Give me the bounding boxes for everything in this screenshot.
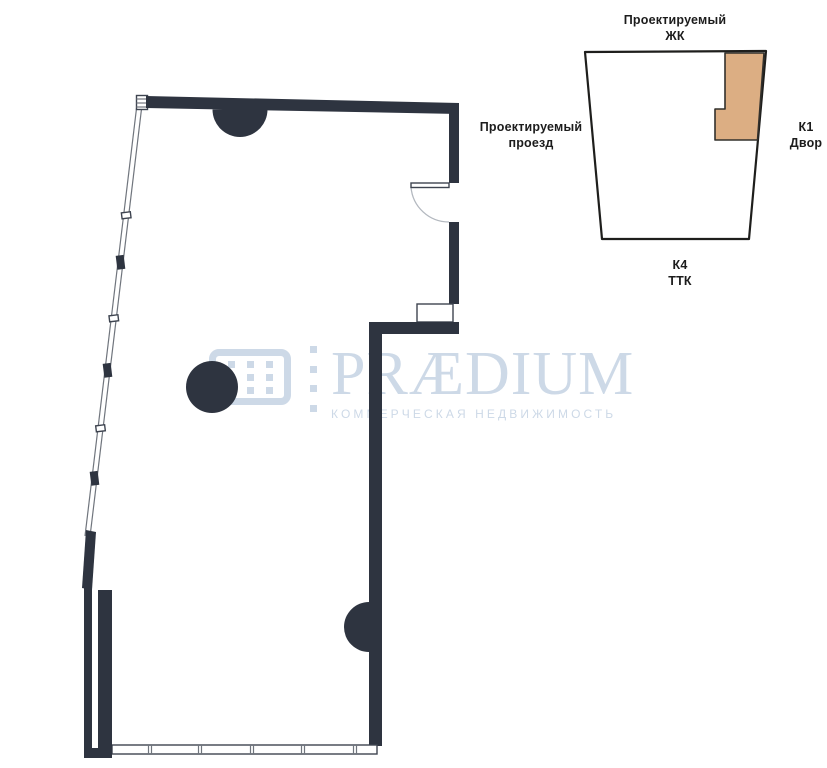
slanted-wall-segment [82, 530, 96, 590]
logo-dot [247, 387, 254, 394]
top-wall [146, 96, 459, 114]
bottom-window-wall [112, 745, 377, 754]
door-swing-arc [411, 187, 449, 222]
logo-dot [228, 361, 235, 368]
logo-dot [266, 374, 273, 381]
label-line: ЖК [624, 29, 727, 45]
label-line: Проектируемый [480, 120, 583, 136]
window-hatch [137, 96, 148, 110]
hatch-frame [137, 96, 148, 110]
praedium-logo-icon [209, 349, 291, 405]
window-mullion-tick [121, 212, 131, 219]
corner-wall-bar [84, 748, 112, 758]
floorplan-page: PRÆDIUM КОММЕРЧЕСКАЯ НЕДВИЖИМОСТЬ [0, 0, 827, 768]
logo-dot [247, 374, 254, 381]
top-half-column [213, 110, 268, 137]
floor-plan [82, 96, 459, 759]
window-line-outer [85, 96, 138, 536]
logo-dot [228, 374, 235, 381]
door-leaf [411, 183, 449, 188]
separator-dot [310, 366, 317, 373]
inner-wall-bar [98, 590, 112, 748]
label-line: проезд [480, 136, 583, 152]
wall-niche [417, 304, 453, 322]
bottom-left-wall [82, 530, 112, 758]
window-sill [112, 745, 377, 754]
separator-dot [310, 405, 317, 412]
label-line: Проектируемый [624, 13, 727, 29]
wall-half-column [344, 602, 369, 652]
outer-wall-bar [84, 586, 92, 758]
brand-tagline: КОММЕРЧЕСКАЯ НЕДВИЖИМОСТЬ [331, 407, 634, 421]
unit-highlight [715, 53, 764, 140]
label-left-proezd: Проектируемый проезд [480, 120, 583, 151]
label-line: К4 [668, 258, 692, 274]
label-line: К1 [790, 120, 823, 136]
right-wall-upper [449, 103, 459, 183]
right-wall-middle [449, 222, 459, 304]
logo-dot [266, 361, 273, 368]
label-line: Двор [790, 136, 823, 152]
logo-dot [247, 361, 254, 368]
window-mullion-block [103, 363, 113, 378]
window-mullion-block [116, 255, 126, 270]
site-plan [585, 51, 766, 239]
separator-dot [310, 346, 317, 353]
left-window-wall [85, 96, 148, 537]
separator-dot [310, 385, 317, 392]
label-right-dvor: К1 Двор [790, 120, 823, 151]
label-top-zhk: Проектируемый ЖК [624, 13, 727, 44]
watermark-text: PRÆDIUM КОММЕРЧЕСКАЯ НЕДВИЖИМОСТЬ [331, 346, 634, 421]
logo-dot [228, 387, 235, 394]
window-mullion-tick [109, 315, 119, 322]
logo-separator-dots [310, 346, 317, 412]
step-wall-horizontal [369, 322, 459, 334]
window-mullion-tick [96, 425, 106, 432]
label-line: ТТК [668, 274, 692, 290]
praedium-watermark: PRÆDIUM КОММЕРЧЕСКАЯ НЕДВИЖИМОСТЬ [209, 346, 634, 421]
label-bottom-ttk: К4 ТТК [668, 258, 692, 289]
window-line-inner [90, 97, 143, 537]
brand-name: PRÆDIUM [331, 346, 634, 402]
site-boundary [585, 51, 766, 239]
window-mullion-block [90, 471, 100, 486]
entrance-door [411, 183, 449, 222]
logo-dot [266, 387, 273, 394]
